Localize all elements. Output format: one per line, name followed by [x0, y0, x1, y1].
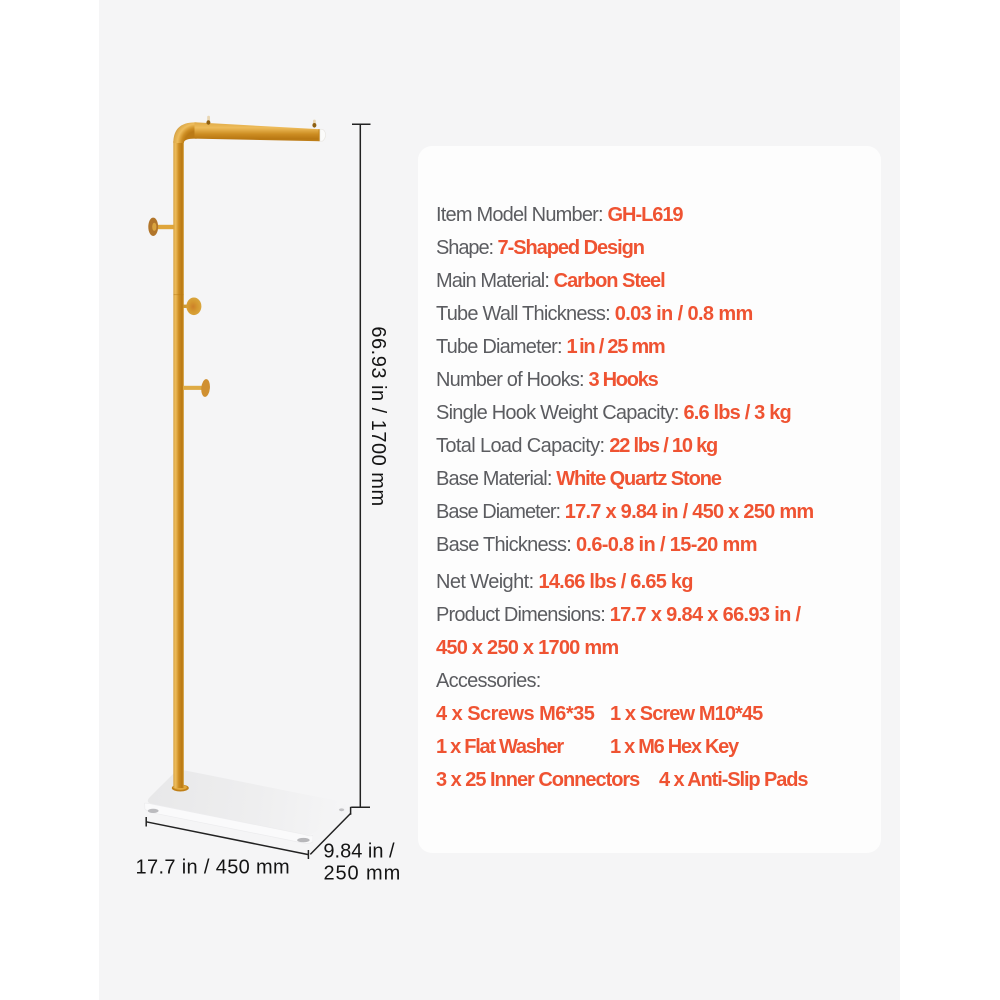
svg-text:250 mm: 250 mm — [324, 862, 402, 884]
svg-text:66.93 in / 1700 mm: 66.93 in / 1700 mm — [367, 326, 389, 506]
svg-text:17.7 in / 450 mm: 17.7 in / 450 mm — [136, 856, 291, 878]
svg-text:9.84 in /: 9.84 in / — [323, 840, 395, 862]
